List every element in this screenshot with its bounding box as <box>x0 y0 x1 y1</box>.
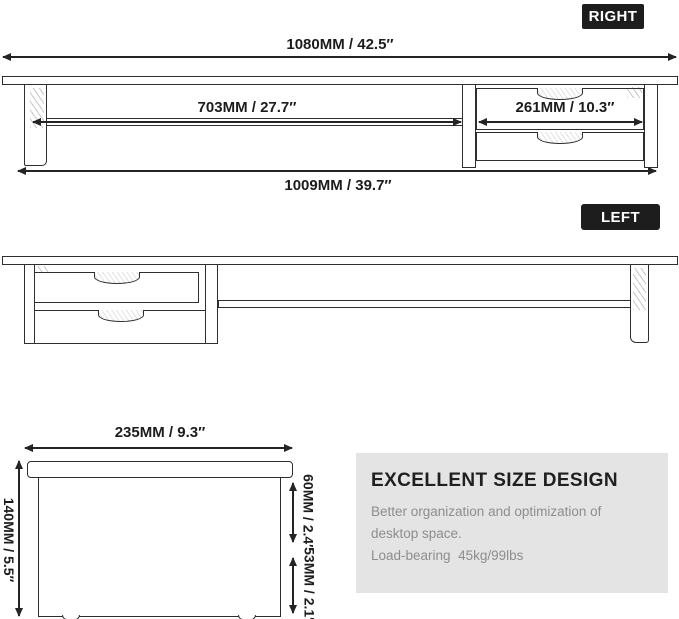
left-view-upper-drawer <box>34 272 199 303</box>
left-view-right-leg-hatch <box>633 268 646 310</box>
right-view-badge: RIGHT <box>582 4 644 29</box>
dim-depth-arrow <box>25 447 292 449</box>
dim-total-width-label: 1080MM / 42.5″ <box>240 36 440 53</box>
side-view-body <box>38 477 281 617</box>
dim-drawer-height-label: 53MM / 2.1″ <box>303 541 318 619</box>
dim-shelf-width-arrow <box>33 121 461 123</box>
right-view-top-board <box>2 76 678 85</box>
dim-drawer-width-arrow <box>479 121 642 123</box>
right-view-right-leg <box>644 84 658 168</box>
lower-drawer-handle-notch <box>537 132 583 144</box>
dim-base-width-arrow <box>18 170 656 172</box>
dim-top-clearance-arrow <box>292 483 294 542</box>
dim-drawer-height-arrow <box>292 558 294 613</box>
dim-total-width-arrow <box>3 56 676 58</box>
right-view-divider-leg <box>462 84 476 168</box>
left-view-badge: LEFT <box>581 204 660 230</box>
left-view-lower-drawer <box>34 310 207 344</box>
dim-drawer-width-label: 261MM / 10.3″ <box>465 99 665 116</box>
left-view-divider-leg <box>205 264 218 344</box>
dim-base-width-label: 1009MM / 39.7″ <box>238 177 438 194</box>
info-panel-line3: Load-bearing 45kg/99lbs <box>371 545 668 567</box>
right-leg-top-hatch <box>627 87 642 98</box>
right-view-lower-drawer <box>476 132 644 161</box>
info-panel-title: EXCELLENT SIZE DESIGN <box>371 470 668 492</box>
left-upper-drawer-handle-notch <box>94 272 140 284</box>
dim-depth-label: 235MM / 9.3″ <box>60 424 260 441</box>
info-panel-line2: desktop space. <box>371 523 668 545</box>
left-view-top-board <box>2 256 678 265</box>
dim-total-height-arrow <box>18 461 20 616</box>
left-view-shelf-rail <box>218 300 632 308</box>
dim-shelf-width-label: 703MM / 27.7″ <box>147 99 347 116</box>
side-view-top-lid <box>27 461 293 478</box>
left-lower-drawer-handle-notch <box>98 310 144 322</box>
side-view-left-foot <box>62 615 80 619</box>
dim-total-height-label: 140MM / 5.5″ <box>1 485 17 595</box>
info-panel: EXCELLENT SIZE DESIGN Better organizatio… <box>356 453 668 593</box>
info-panel-line1: Better organization and optimization of <box>371 501 668 523</box>
side-view-right-foot <box>238 615 256 619</box>
monitor-stand-dimension-diagram: RIGHT 1080MM / 42.5″ 703MM / 27.7″ 261MM… <box>0 0 679 619</box>
